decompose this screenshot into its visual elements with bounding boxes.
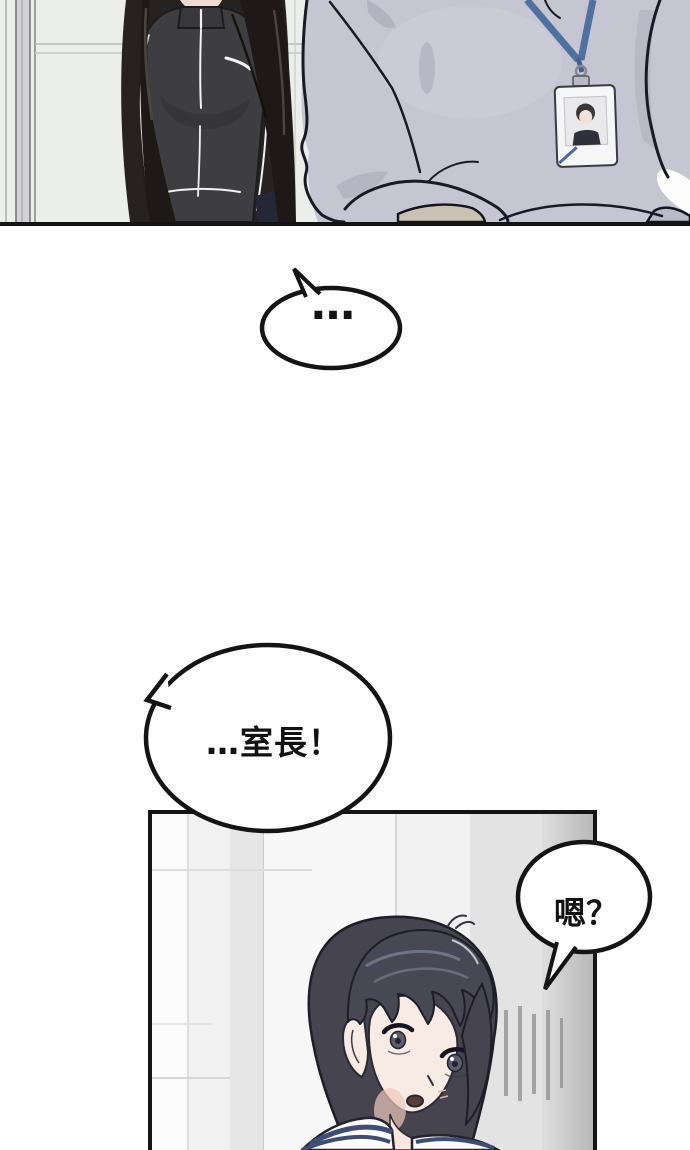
speech-bubble-reply: 嗯？ xyxy=(510,836,658,994)
bubble-ellipsis-text: … xyxy=(257,248,412,360)
speech-bubble-ellipsis: … xyxy=(255,262,410,374)
jacket-white-piping xyxy=(141,10,268,214)
clip-ring-icon xyxy=(576,66,586,76)
lanyard xyxy=(527,0,593,86)
girl-eyes xyxy=(384,1025,469,1077)
id-badge xyxy=(555,85,618,167)
bubble-call-text: …室長！ xyxy=(143,640,405,840)
bubble-reply-text: 嗯？ xyxy=(512,832,660,990)
badge-blue-stripe xyxy=(559,147,578,163)
webtoon-page: … …室長！ 嗯？ xyxy=(0,0,690,1150)
badge-photo xyxy=(564,96,608,145)
panel-top xyxy=(0,0,690,226)
hoodie-fold-lines xyxy=(302,0,668,222)
panel-top-art xyxy=(0,0,690,222)
speech-bubble-call: …室長！ xyxy=(140,638,402,838)
wall-background xyxy=(0,0,690,222)
character-hoodie xyxy=(301,0,690,222)
character-girl xyxy=(302,915,498,1150)
wall-slats xyxy=(504,1006,563,1101)
clip-icon xyxy=(573,76,589,86)
character-track-jacket xyxy=(121,0,296,222)
